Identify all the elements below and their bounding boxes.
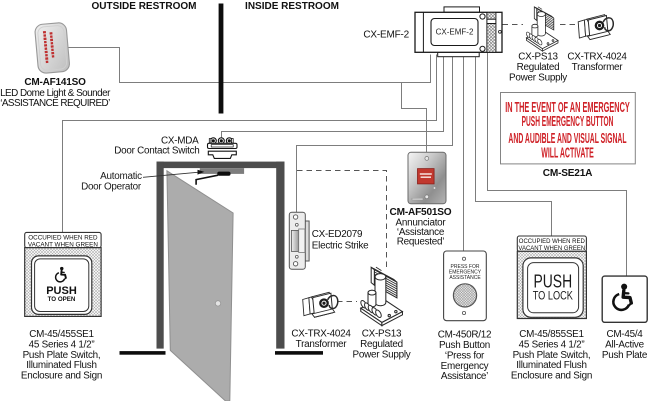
svg-text:CX-PS13: CX-PS13 — [518, 52, 558, 63]
svg-text:CX-EMF-2: CX-EMF-2 — [436, 28, 474, 37]
svg-text:45 Series 4 1/2”: 45 Series 4 1/2” — [519, 339, 585, 350]
svg-text:CM-AF141SO: CM-AF141SO — [24, 77, 86, 88]
svg-text:CX-TRX-4024: CX-TRX-4024 — [291, 329, 351, 340]
svg-text:Regulated: Regulated — [517, 62, 560, 73]
svg-text:CM-SE21A: CM-SE21A — [543, 168, 593, 179]
svg-text:Power Supply: Power Supply — [509, 72, 567, 83]
svg-text:Door Contact Switch: Door Contact Switch — [114, 146, 199, 157]
svg-text:CX-PS13: CX-PS13 — [362, 329, 402, 340]
svg-text:ASSISTANCE: ASSISTANCE — [449, 275, 481, 281]
svg-text:Illuminated Flush: Illuminated Flush — [516, 360, 586, 371]
svg-text:Regulated: Regulated — [360, 339, 403, 350]
svg-text:VACANT WHEN GREEN: VACANT WHEN GREEN — [518, 246, 585, 252]
svg-text:Assistance’: Assistance’ — [441, 371, 488, 382]
svg-text:CM-45/4: CM-45/4 — [606, 329, 643, 340]
svg-text:INSIDE RESTROOM: INSIDE RESTROOM — [245, 1, 339, 12]
svg-text:Illuminated Flush: Illuminated Flush — [26, 360, 96, 371]
svg-text:CM-45/855SE1: CM-45/855SE1 — [519, 329, 584, 340]
svg-text:CX-MDA: CX-MDA — [161, 135, 199, 146]
svg-text:Push Plate Switch,: Push Plate Switch, — [513, 350, 591, 361]
svg-text:Power Supply: Power Supply — [353, 349, 411, 360]
svg-text:Push Button: Push Button — [439, 340, 490, 351]
svg-text:Emergency: Emergency — [441, 361, 489, 372]
svg-text:45 Series 4 1/2”: 45 Series 4 1/2” — [29, 339, 95, 350]
svg-text:CM-45/455SE1: CM-45/455SE1 — [29, 329, 94, 340]
svg-text:Automatic: Automatic — [100, 171, 142, 182]
svg-text:Transformer: Transformer — [572, 62, 624, 73]
svg-text:Electric Strike: Electric Strike — [312, 240, 369, 251]
svg-text:Push Plate Switch,: Push Plate Switch, — [23, 350, 101, 361]
svg-text:TO OPEN: TO OPEN — [48, 296, 76, 303]
svg-text:CX-TRX-4024: CX-TRX-4024 — [567, 52, 627, 63]
svg-text:CM-450R/12: CM-450R/12 — [438, 330, 491, 341]
svg-text:WILL ACTIVATE: WILL ACTIVATE — [541, 145, 594, 162]
svg-text:Enclosure and Sign: Enclosure and Sign — [21, 371, 102, 382]
svg-text:PUSH EMERGENCY BUTTON: PUSH EMERGENCY BUTTON — [522, 114, 614, 130]
svg-text:Push Plate: Push Plate — [602, 350, 648, 361]
svg-text:OUTSIDE RESTROOM: OUTSIDE RESTROOM — [91, 1, 196, 12]
svg-text:CX-EMF-2: CX-EMF-2 — [363, 29, 409, 40]
svg-text:All-Active: All-Active — [605, 339, 644, 350]
svg-text:Transformer: Transformer — [296, 339, 348, 350]
svg-text:CX-ED2079: CX-ED2079 — [312, 229, 363, 240]
svg-text:Door Operator: Door Operator — [81, 181, 142, 192]
svg-text:VACANT WHEN GREEN: VACANT WHEN GREEN — [28, 241, 99, 248]
svg-text:TO LOCK: TO LOCK — [533, 289, 573, 302]
svg-text:Requested’: Requested’ — [397, 237, 445, 248]
svg-text:OCCUPIED WHEN RED: OCCUPIED WHEN RED — [519, 239, 586, 245]
svg-text:‘ASSISTANCE REQUIRED’: ‘ASSISTANCE REQUIRED’ — [0, 98, 110, 109]
svg-text:‘Press for: ‘Press for — [445, 350, 485, 361]
svg-text:Enclosure and Sign: Enclosure and Sign — [511, 371, 592, 382]
